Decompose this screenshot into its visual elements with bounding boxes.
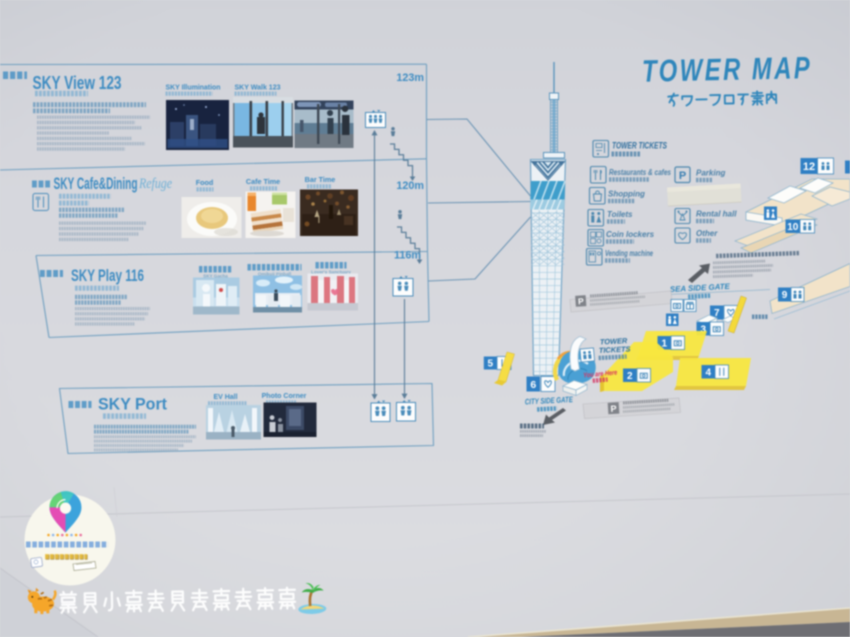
svg-text:SKY Illumination: SKY Illumination (166, 83, 221, 92)
svg-text:123m: 123m (396, 72, 424, 84)
svg-text:SKY Cafe&Dining: SKY Cafe&Dining (54, 175, 138, 193)
svg-text:12: 12 (803, 161, 815, 173)
svg-text:Other: Other (696, 229, 718, 238)
svg-text:2: 2 (627, 371, 633, 382)
svg-text:TOWER MAP: TOWER MAP (642, 50, 813, 88)
svg-text:120m: 120m (396, 180, 424, 192)
svg-text:TOWER TICKETS: TOWER TICKETS (612, 141, 668, 151)
svg-text:SKY View 123: SKY View 123 (33, 72, 122, 93)
svg-text:Parking: Parking (696, 169, 725, 178)
svg-text:Bar Time: Bar Time (305, 175, 336, 184)
svg-text:Shopping: Shopping (608, 190, 645, 199)
svg-text:Refuge: Refuge (138, 176, 172, 192)
svg-text:SKY Port: SKY Port (98, 395, 167, 414)
svg-text:Rental hall: Rental hall (696, 210, 737, 219)
svg-text:Restaurants & cafes: Restaurants & cafes (609, 168, 671, 177)
svg-text:9: 9 (782, 290, 788, 301)
svg-text:116m: 116m (394, 250, 421, 262)
svg-text:Food: Food (196, 178, 214, 187)
svg-text:10: 10 (787, 222, 799, 233)
svg-text:6: 6 (530, 379, 536, 391)
svg-text:Toilets: Toilets (607, 210, 633, 219)
svg-text:5: 5 (488, 359, 494, 370)
svg-text:Cafe Time: Cafe Time (246, 177, 280, 186)
svg-text:EV Hall: EV Hall (213, 394, 237, 401)
svg-text:4: 4 (705, 367, 711, 378)
svg-text:P: P (679, 170, 686, 182)
svg-text:Coin lockers: Coin lockers (606, 230, 655, 239)
svg-text:Vending machine: Vending machine (605, 249, 653, 258)
svg-text:P: P (578, 296, 585, 306)
svg-text:P: P (610, 403, 617, 413)
svg-text:TICKETS: TICKETS (599, 344, 631, 355)
svg-text:SKY Walk 123: SKY Walk 123 (235, 83, 281, 92)
svg-text:Photo Corner: Photo Corner (262, 393, 307, 400)
svg-text:SKY Play 116: SKY Play 116 (71, 267, 144, 285)
